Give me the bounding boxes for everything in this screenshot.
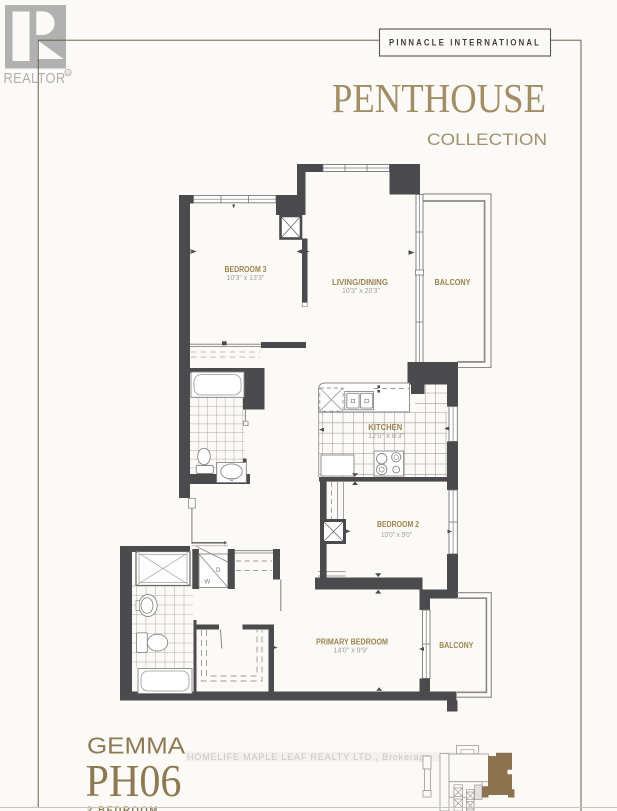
svg-text:10'3" x 20'3": 10'3" x 20'3"	[342, 288, 381, 295]
svg-text:BEDROOM 2: BEDROOM 2	[377, 519, 419, 529]
svg-text:PINNACLE INTERNATIONAL: PINNACLE INTERNATIONAL	[389, 38, 541, 49]
svg-text:W: W	[205, 580, 211, 586]
svg-text:KITCHEN: KITCHEN	[368, 422, 402, 432]
svg-text:BALCONY: BALCONY	[435, 277, 471, 287]
svg-text:10'3" x 13'3": 10'3" x 13'3"	[227, 275, 266, 282]
svg-text:BALCONY: BALCONY	[439, 640, 473, 650]
svg-text:14'0" x 9'9": 14'0" x 9'9"	[334, 648, 370, 655]
svg-text:PH06: PH06	[86, 755, 182, 806]
svg-text:HOMELIFE MAPLE LEAF REALTY LTD: HOMELIFE MAPLE LEAF REALTY LTD., Brokera…	[187, 752, 431, 762]
svg-text:PRIMARY BEDROOM: PRIMARY BEDROOM	[316, 637, 388, 647]
svg-text:10'0" x 9'0": 10'0" x 9'0"	[381, 532, 412, 539]
svg-text:REALTOR: REALTOR	[4, 70, 66, 87]
svg-text:R: R	[66, 71, 70, 77]
svg-text:LIVING/DINING: LIVING/DINING	[332, 277, 388, 287]
svg-text:COLLECTION: COLLECTION	[427, 131, 547, 149]
svg-text:D: D	[216, 568, 221, 574]
svg-text:BEDROOM 3: BEDROOM 3	[225, 264, 267, 274]
svg-text:12'0" x 8'3": 12'0" x 8'3"	[368, 433, 405, 440]
svg-text:PENTHOUSE: PENTHOUSE	[332, 75, 546, 121]
